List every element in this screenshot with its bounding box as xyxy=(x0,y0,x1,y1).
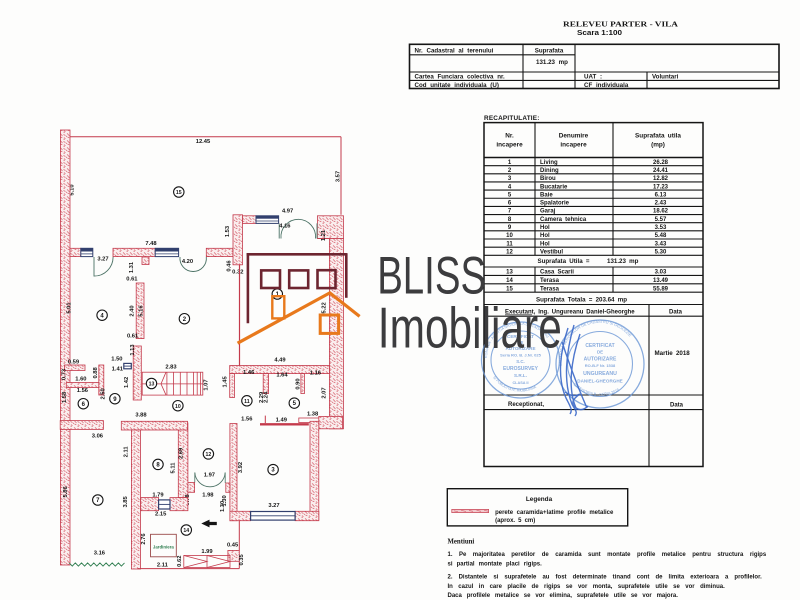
svg-text:2.43: 2.43 xyxy=(655,201,667,207)
svg-text:UNGUREANU: UNGUREANU xyxy=(583,371,617,377)
svg-text:2. Distantele si suprafetele a: 2. Distantele si suprafetele au fost det… xyxy=(448,574,763,580)
svg-text:Receptionat,: Receptionat, xyxy=(508,402,544,408)
svg-text:(aprox. 5 cm): (aprox. 5 cm) xyxy=(495,518,535,524)
svg-text:Dining: Dining xyxy=(540,168,559,174)
svg-text:CF individuala: CF individuala xyxy=(584,82,629,89)
svg-text:(mp): (mp) xyxy=(651,142,665,149)
svg-text:0.61: 0.61 xyxy=(127,334,139,340)
svg-text:EUROSURVEY: EUROSURVEY xyxy=(503,366,539,372)
svg-text:5.01: 5.01 xyxy=(67,302,73,314)
svg-text:15: 15 xyxy=(506,286,513,292)
svg-text:perete caramida+latime profile: perete caramida+latime profile metalice xyxy=(495,510,614,516)
svg-text:RO-B-F Nr. 1538: RO-B-F Nr. 1538 xyxy=(585,363,616,368)
svg-text:12: 12 xyxy=(206,452,212,458)
svg-text:AUTORIZARE: AUTORIZARE xyxy=(584,357,617,363)
svg-text:1.16: 1.16 xyxy=(310,371,322,377)
svg-text:Voluntari: Voluntari xyxy=(652,73,679,80)
svg-text:4.49: 4.49 xyxy=(274,357,286,363)
svg-text:Suprafata Utila =: Suprafata Utila = xyxy=(538,258,590,265)
svg-text:2.83: 2.83 xyxy=(165,364,177,370)
svg-text:15: 15 xyxy=(176,190,182,196)
svg-text:6.13: 6.13 xyxy=(655,192,667,198)
svg-text:Scara 1:100: Scara 1:100 xyxy=(577,30,622,37)
svg-text:2.15: 2.15 xyxy=(155,512,167,518)
svg-text:Data: Data xyxy=(670,402,684,408)
svg-text:Suprafata utila: Suprafata utila xyxy=(635,133,681,140)
svg-text:1.45: 1.45 xyxy=(222,375,228,387)
svg-text:5.48: 5.48 xyxy=(655,233,667,239)
svg-text:5.22: 5.22 xyxy=(321,302,327,313)
svg-text:26.28: 26.28 xyxy=(653,160,669,166)
svg-text:3.27: 3.27 xyxy=(268,503,279,509)
svg-text:1.46: 1.46 xyxy=(243,370,255,376)
svg-text:2.07: 2.07 xyxy=(321,387,327,398)
svg-text:2.11: 2.11 xyxy=(157,563,169,569)
svg-text:Terasa: Terasa xyxy=(540,278,560,284)
svg-text:0.45: 0.45 xyxy=(227,543,239,549)
svg-text:11: 11 xyxy=(244,399,250,405)
svg-text:10: 10 xyxy=(506,233,513,239)
svg-text:Vestibul: Vestibul xyxy=(540,249,563,255)
svg-text:131.23 mp: 131.23 mp xyxy=(536,59,568,66)
svg-text:Living: Living xyxy=(540,160,558,166)
svg-text:3.43: 3.43 xyxy=(655,241,667,247)
svg-text:Jardiniera: Jardiniera xyxy=(153,545,175,550)
svg-text:14: 14 xyxy=(183,528,189,534)
svg-text:DANIEL-GHEORGHE: DANIEL-GHEORGHE xyxy=(577,379,622,384)
svg-text:10: 10 xyxy=(175,404,181,410)
svg-text:Hol: Hol xyxy=(540,241,550,247)
svg-text:Nr.: Nr. xyxy=(505,133,514,140)
svg-text:12: 12 xyxy=(506,249,513,255)
svg-text:1.42: 1.42 xyxy=(124,377,130,388)
svg-text:14: 14 xyxy=(506,278,513,284)
svg-text:3.53: 3.53 xyxy=(655,225,667,231)
svg-text:Casa Scarii: Casa Scarii xyxy=(540,270,574,276)
svg-text:Garaj: Garaj xyxy=(540,209,556,215)
svg-text:2.69: 2.69 xyxy=(178,447,184,459)
svg-text:DE: DE xyxy=(597,350,603,355)
svg-text:4.97: 4.97 xyxy=(282,209,293,215)
svg-text:2.50: 2.50 xyxy=(100,388,106,399)
svg-text:2.11: 2.11 xyxy=(123,446,129,458)
svg-text:1.64: 1.64 xyxy=(276,372,288,378)
svg-text:1.53: 1.53 xyxy=(225,225,231,237)
svg-text:5.30: 5.30 xyxy=(655,249,667,255)
svg-text:1.97: 1.97 xyxy=(204,472,215,478)
svg-text:1.99: 1.99 xyxy=(201,549,213,555)
svg-text:3.16: 3.16 xyxy=(94,550,106,556)
svg-text:Camera tehnica: Camera tehnica xyxy=(540,217,587,223)
svg-text:55.89: 55.89 xyxy=(653,286,669,292)
svg-text:5.86: 5.86 xyxy=(63,485,69,497)
svg-text:2.24: 2.24 xyxy=(263,391,269,403)
svg-text:CLASA II: CLASA II xyxy=(512,381,528,385)
svg-text:1.30: 1.30 xyxy=(222,495,228,506)
svg-text:1.07: 1.07 xyxy=(204,379,210,390)
svg-text:0.73: 0.73 xyxy=(62,368,68,380)
svg-text:0.32: 0.32 xyxy=(232,270,243,276)
svg-text:0.90: 0.90 xyxy=(295,378,301,389)
svg-text:Bucatarie: Bucatarie xyxy=(540,184,568,190)
svg-text:24.41: 24.41 xyxy=(653,168,669,174)
svg-text:13: 13 xyxy=(506,270,513,276)
svg-text:1.38: 1.38 xyxy=(307,411,319,417)
svg-text:0.61: 0.61 xyxy=(126,277,138,283)
svg-text:1.58: 1.58 xyxy=(62,391,68,403)
svg-text:3.03: 3.03 xyxy=(655,270,667,276)
svg-text:1.13: 1.13 xyxy=(130,344,136,356)
svg-text:CERTIFICAT: CERTIFICAT xyxy=(585,343,614,349)
svg-text:UAT :: UAT : xyxy=(584,74,602,81)
svg-text:5.57: 5.57 xyxy=(655,217,667,223)
svg-text:2.76: 2.76 xyxy=(141,533,147,545)
svg-text:3.06: 3.06 xyxy=(92,433,104,439)
svg-text:1.50: 1.50 xyxy=(111,356,122,362)
svg-text:4.20: 4.20 xyxy=(182,259,193,265)
svg-text:S.R.L.: S.R.L. xyxy=(514,373,527,378)
svg-text:1.98: 1.98 xyxy=(202,492,214,498)
svg-text:Terasa: Terasa xyxy=(540,286,560,292)
svg-text:si partial montate placi rigip: si partial montate placi rigips. xyxy=(448,561,543,567)
svg-text:131.23 mp: 131.23 mp xyxy=(607,258,639,265)
svg-text:In cazul in care placile de ri: In cazul in care placile de rigips se vo… xyxy=(448,584,726,590)
svg-text:Baie: Baie xyxy=(540,192,553,198)
svg-text:3.88: 3.88 xyxy=(135,412,147,418)
svg-text:0.59: 0.59 xyxy=(68,359,80,365)
svg-text:Martie 2018: Martie 2018 xyxy=(655,350,691,357)
svg-text:Hol: Hol xyxy=(540,225,550,231)
svg-text:0.88: 0.88 xyxy=(93,366,99,378)
svg-text:1.31: 1.31 xyxy=(129,261,135,273)
svg-text:1. Pe majoritatea peretilor de: 1. Pe majoritatea peretilor de caramida … xyxy=(448,552,767,558)
svg-text:1.60: 1.60 xyxy=(75,376,86,382)
svg-text:13.49: 13.49 xyxy=(653,278,669,284)
svg-text:2.40: 2.40 xyxy=(129,305,135,316)
svg-text:Daca profilele metalice se vor: Daca profilele metalice se vor elimina, … xyxy=(448,593,679,599)
svg-text:5.11: 5.11 xyxy=(170,462,176,474)
svg-text:7.48: 7.48 xyxy=(145,241,157,247)
svg-text:Spalatorie: Spalatorie xyxy=(540,201,570,207)
svg-text:0.35: 0.35 xyxy=(239,553,245,565)
svg-text:Suprafata: Suprafata xyxy=(535,47,564,54)
svg-text:Data: Data xyxy=(669,309,683,315)
svg-text:13: 13 xyxy=(149,382,155,388)
svg-text:3.57: 3.57 xyxy=(336,171,342,182)
svg-text:Birou: Birou xyxy=(540,176,556,182)
svg-text:1.49: 1.49 xyxy=(276,418,288,424)
svg-text:18.62: 18.62 xyxy=(653,209,669,215)
svg-text:RELEVEU PARTER - VILA: RELEVEU PARTER - VILA xyxy=(563,20,679,29)
svg-text:0.62: 0.62 xyxy=(177,556,183,567)
svg-text:incapere: incapere xyxy=(560,142,587,149)
svg-text:3.27: 3.27 xyxy=(97,256,108,262)
svg-text:1.41: 1.41 xyxy=(112,367,124,373)
svg-text:12.45: 12.45 xyxy=(196,139,211,145)
svg-text:Denumire: Denumire xyxy=(559,133,589,140)
svg-text:Mentiuni: Mentiuni xyxy=(448,539,475,546)
svg-text:1.79: 1.79 xyxy=(152,492,164,498)
svg-text:3.92: 3.92 xyxy=(238,462,244,473)
svg-text:RECAPITULATIE:: RECAPITULATIE: xyxy=(484,115,540,122)
svg-text:1.56: 1.56 xyxy=(241,416,253,422)
svg-text:12.82: 12.82 xyxy=(653,176,669,182)
svg-text:Legenda: Legenda xyxy=(526,496,553,503)
svg-text:1.56: 1.56 xyxy=(77,388,89,394)
svg-text:Imobiliare: Imobiliare xyxy=(378,297,562,361)
svg-text:3.85: 3.85 xyxy=(123,495,129,507)
svg-text:1.21: 1.21 xyxy=(321,229,327,241)
svg-text:11: 11 xyxy=(506,241,513,247)
svg-text:Cod unitate individuala (U): Cod unitate individuala (U) xyxy=(415,82,499,89)
svg-text:4.16: 4.16 xyxy=(279,223,291,229)
svg-text:Cartea Funciara colectiva nr.: Cartea Funciara colectiva nr. xyxy=(415,74,506,81)
svg-text:Nr. Cadastral al terenului: Nr. Cadastral al terenului xyxy=(415,47,494,54)
svg-text:Hol: Hol xyxy=(540,233,550,239)
svg-text:5.16: 5.16 xyxy=(138,305,144,317)
svg-text:17.23: 17.23 xyxy=(653,184,669,190)
svg-text:incapere: incapere xyxy=(496,142,523,149)
